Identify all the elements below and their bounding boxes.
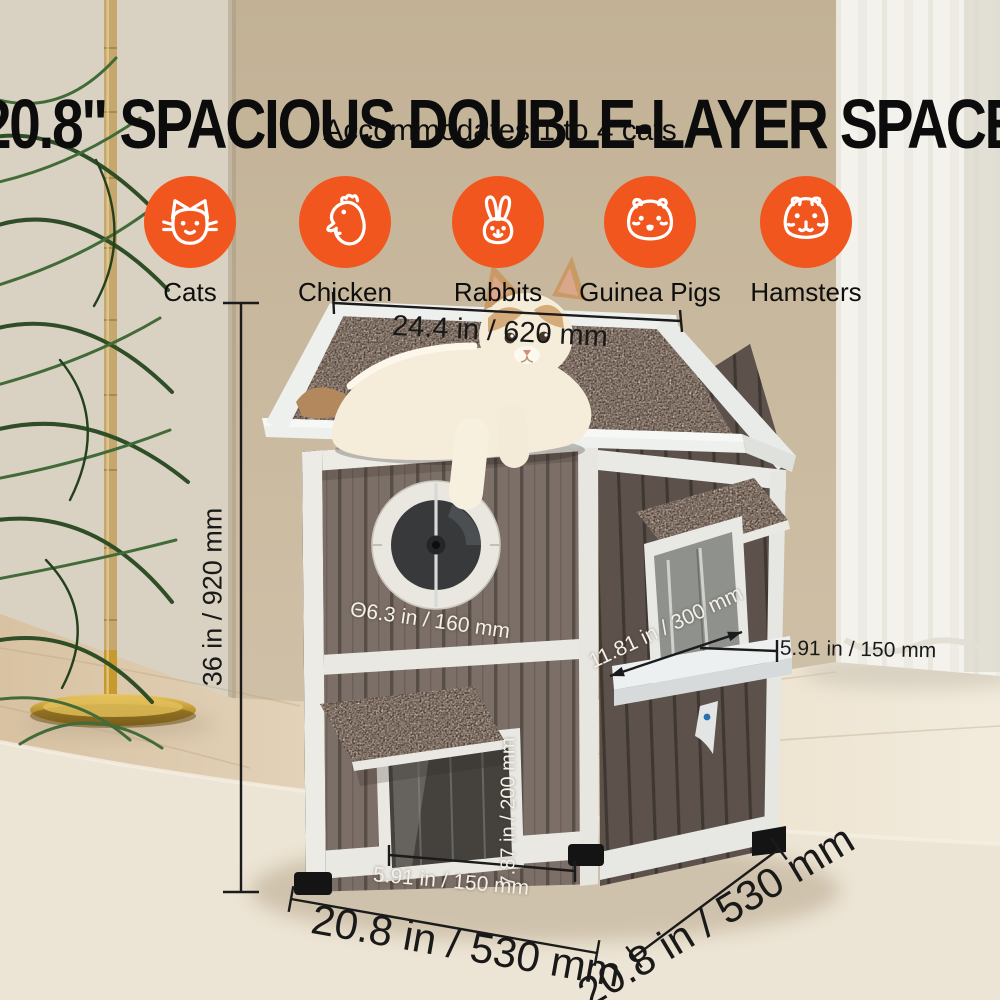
cat-icon (144, 176, 236, 268)
animal-label: Hamsters (726, 277, 886, 308)
animal-label: Guinea Pigs (570, 277, 730, 308)
animal-rabbits: Rabbits (418, 176, 578, 308)
animal-chicken: Chicken (265, 176, 425, 308)
chicken-icon (299, 176, 391, 268)
dim-door-height: 7.87 in / 200 mm (498, 738, 521, 887)
animal-label: Rabbits (418, 277, 578, 308)
dim-shelf-depth: 5.91 in / 150 mm (780, 637, 937, 664)
guinea-pig-icon (604, 176, 696, 268)
animal-cats: Cats (110, 176, 270, 308)
animal-guinea-pigs: Guinea Pigs (570, 176, 730, 308)
subtitle: Accommodates 1 to 4 cats (323, 114, 677, 148)
rabbit-icon (452, 176, 544, 268)
dim-total-height: 36 in / 920 mm (198, 508, 229, 687)
animal-label: Cats (110, 277, 270, 308)
animal-label: Chicken (265, 277, 425, 308)
hamster-icon (760, 176, 852, 268)
animal-hamsters: Hamsters (726, 176, 886, 308)
product-infographic: 20.8" SPACIOUS DOUBLE-LAYER SPACE Accomm… (0, 0, 1000, 1000)
